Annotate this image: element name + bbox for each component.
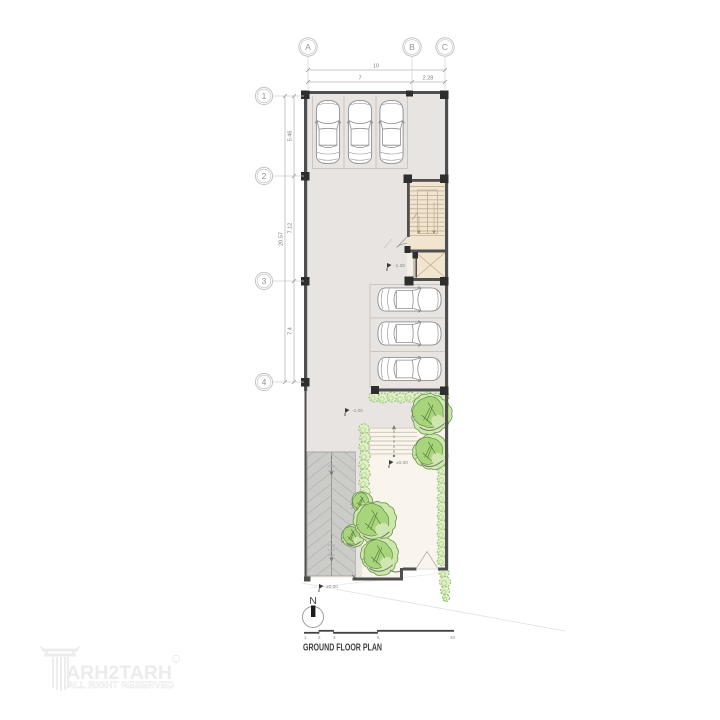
- svg-text:7: 7: [358, 76, 361, 82]
- svg-text:1: 1: [262, 91, 267, 101]
- svg-text:-1.00: -1.00: [352, 408, 363, 414]
- svg-text:4: 4: [262, 377, 267, 387]
- svg-text:7.4: 7.4: [288, 327, 294, 335]
- svg-text:±0.00: ±0.00: [326, 584, 338, 590]
- svg-text:10: 10: [373, 64, 379, 70]
- svg-text:3: 3: [262, 276, 267, 286]
- svg-text:20.57: 20.57: [279, 232, 285, 246]
- svg-text:2.28: 2.28: [423, 76, 434, 82]
- svg-text:GROUND FLOOR PLAN: GROUND FLOOR PLAN: [303, 642, 382, 654]
- svg-text:±0.00: ±0.00: [396, 460, 408, 466]
- svg-text:7.12: 7.12: [288, 223, 294, 234]
- svg-text:A: A: [305, 42, 311, 52]
- svg-text:10: 10: [450, 635, 456, 640]
- svg-text:-1.28: -1.28: [394, 263, 405, 269]
- svg-text:N: N: [309, 595, 317, 607]
- svg-text:C: C: [442, 42, 448, 52]
- svg-text:ALL RIGHT RESERVED: ALL RIGHT RESERVED: [67, 680, 174, 691]
- svg-text:B: B: [409, 42, 415, 52]
- svg-text:2: 2: [262, 171, 267, 181]
- svg-text:5.46: 5.46: [288, 131, 294, 142]
